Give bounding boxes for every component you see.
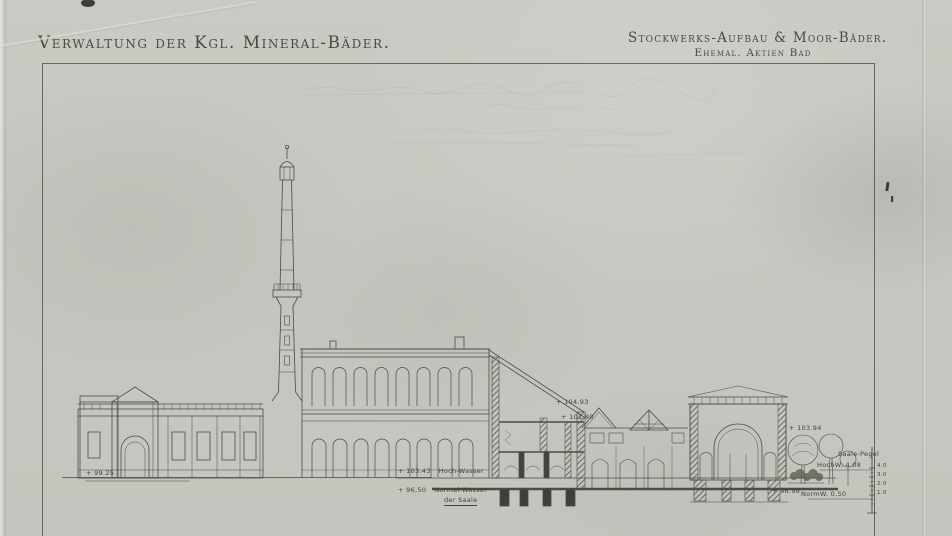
left-wing bbox=[78, 387, 263, 478]
pegel-hochwasser-label: HochW. 4.08 bbox=[817, 462, 861, 469]
normalwasser-label: Normal-Wasser bbox=[434, 486, 487, 494]
tower bbox=[272, 145, 302, 401]
bushes bbox=[790, 469, 823, 481]
level-annotation-ground-left: + 99.25 bbox=[86, 470, 114, 477]
crease-line bbox=[0, 2, 255, 48]
level-annotation-section-lower: + 101.80 bbox=[561, 414, 594, 421]
main-hall bbox=[300, 337, 490, 478]
level-annotation-ground-right: + 96.98 bbox=[772, 488, 800, 495]
pegel-tick-4: 4.0 bbox=[877, 464, 887, 470]
normalwasser-value: + 96,50 bbox=[398, 486, 426, 494]
drawing-sheet: Verwaltung der Kgl. Mineral-Bäder. Stock… bbox=[0, 0, 952, 536]
ink-blot bbox=[81, 0, 893, 202]
level-annotation-der-saale: der Saale bbox=[444, 497, 477, 506]
pegel-tick-3: 3.0 bbox=[877, 473, 887, 479]
elevation-linework bbox=[62, 145, 877, 513]
level-annotation-section-upper: + 104.93 bbox=[556, 399, 589, 406]
pegel-tick-1: 1.0 bbox=[877, 491, 887, 497]
hochwasser-value: + 103.43 bbox=[398, 467, 431, 475]
section-cut bbox=[489, 350, 585, 506]
level-annotation-pavilion-cornice: + 103.94 bbox=[789, 425, 822, 432]
level-annotation-normalwasser: + 96,50Normal-Wasser bbox=[398, 487, 487, 494]
pegel-tick-2: 2.0 bbox=[877, 482, 887, 488]
faint-handwriting bbox=[300, 79, 748, 156]
building-elevation-drawing bbox=[0, 0, 952, 536]
level-annotation-hochwasser: + 103.43Hoch-Wasser bbox=[398, 468, 484, 475]
middle-wing bbox=[582, 408, 688, 489]
trees bbox=[788, 434, 856, 486]
right-pavilion bbox=[688, 386, 788, 502]
pegel-normalwasser-label: NormW. 0,50 bbox=[801, 491, 846, 498]
pegel-title: Saale-Pegel bbox=[838, 451, 879, 458]
hochwasser-label: Hoch-Wasser bbox=[439, 467, 484, 475]
